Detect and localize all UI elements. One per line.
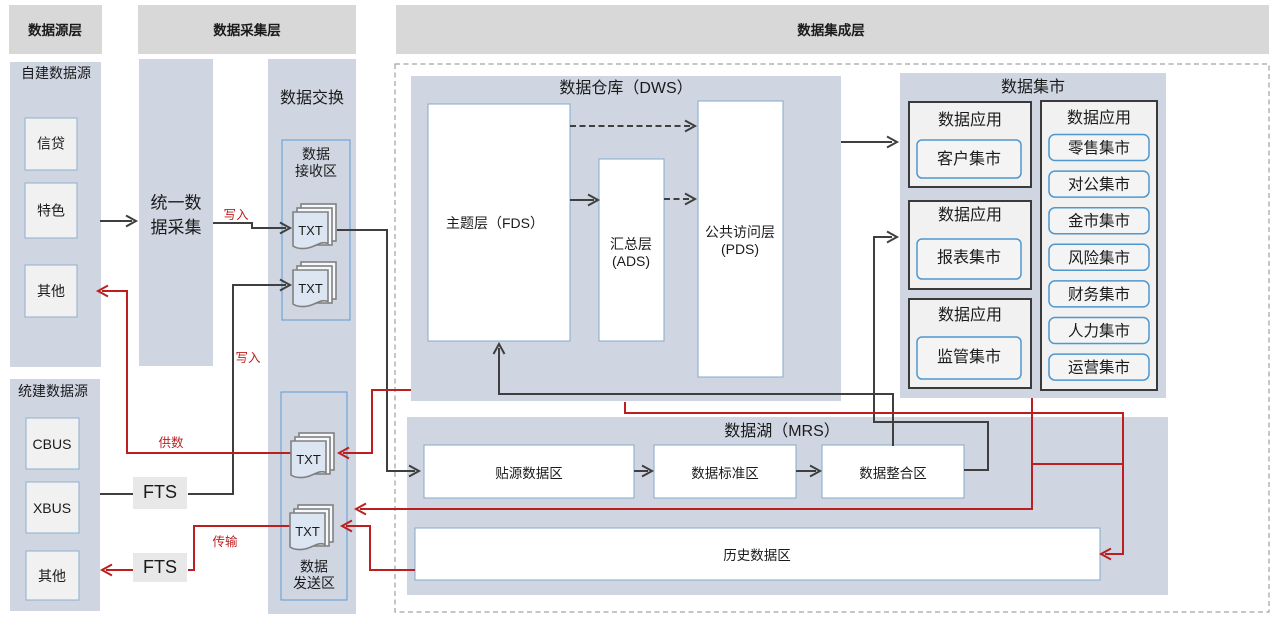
svg-text:数据应用: 数据应用 <box>938 110 1002 129</box>
svg-text:TXT: TXT <box>298 223 323 238</box>
svg-text:据采集: 据采集 <box>151 218 202 237</box>
svg-text:数据应用: 数据应用 <box>1067 108 1131 127</box>
svg-text:统建数据源: 统建数据源 <box>18 383 88 399</box>
svg-text:其他: 其他 <box>38 568 66 584</box>
svg-text:数据采集层: 数据采集层 <box>213 22 281 38</box>
svg-text:数据: 数据 <box>300 559 328 575</box>
svg-text:风险集市: 风险集市 <box>1068 249 1130 267</box>
svg-text:FTS: FTS <box>143 482 177 502</box>
svg-text:贴源数据区: 贴源数据区 <box>495 466 563 481</box>
svg-text:FTS: FTS <box>143 557 177 577</box>
svg-text:数据标准区: 数据标准区 <box>691 466 759 481</box>
svg-text:数据仓库（DWS）: 数据仓库（DWS） <box>559 79 692 97</box>
svg-text:汇总层: 汇总层 <box>610 236 652 252</box>
svg-text:人力集市: 人力集市 <box>1068 322 1130 340</box>
svg-text:金市集市: 金市集市 <box>1068 212 1130 230</box>
svg-text:对公集市: 对公集市 <box>1068 176 1130 194</box>
svg-text:运营集市: 运营集市 <box>1068 359 1130 377</box>
svg-text:数据整合区: 数据整合区 <box>859 466 927 481</box>
svg-text:供数: 供数 <box>158 435 184 450</box>
svg-text:公共访问层: 公共访问层 <box>705 224 775 240</box>
svg-text:自建数据源: 自建数据源 <box>21 65 91 81</box>
svg-text:数据源层: 数据源层 <box>28 22 82 38</box>
svg-text:数据湖（MRS）: 数据湖（MRS） <box>724 422 840 440</box>
svg-text:数据: 数据 <box>302 146 330 162</box>
svg-text:财务集市: 财务集市 <box>1068 285 1130 303</box>
svg-text:写入: 写入 <box>223 208 249 222</box>
svg-text:零售集市: 零售集市 <box>1068 139 1130 157</box>
svg-text:发送区: 发送区 <box>293 575 335 591</box>
svg-text:数据应用: 数据应用 <box>938 205 1002 224</box>
svg-text:数据集市: 数据集市 <box>1001 78 1065 96</box>
svg-text:历史数据区: 历史数据区 <box>723 548 791 563</box>
svg-text:客户集市: 客户集市 <box>937 150 1001 168</box>
svg-text:监管集市: 监管集市 <box>937 348 1001 366</box>
svg-text:CBUS: CBUS <box>33 436 72 452</box>
svg-text:数据应用: 数据应用 <box>938 305 1002 324</box>
svg-text:XBUS: XBUS <box>33 500 71 516</box>
svg-text:报表集市: 报表集市 <box>937 249 1001 267</box>
svg-text:(PDS): (PDS) <box>721 241 759 257</box>
svg-text:主题层（FDS）: 主题层（FDS） <box>446 215 544 231</box>
svg-text:数据交换: 数据交换 <box>280 89 344 107</box>
svg-text:信贷: 信贷 <box>37 136 65 152</box>
svg-text:(ADS): (ADS) <box>612 253 650 269</box>
svg-text:统一数: 统一数 <box>151 194 202 213</box>
svg-text:写入: 写入 <box>235 351 261 365</box>
svg-text:接收区: 接收区 <box>295 163 337 179</box>
svg-text:特色: 特色 <box>37 203 65 219</box>
svg-text:数据集成层: 数据集成层 <box>797 22 865 38</box>
svg-text:传输: 传输 <box>212 534 238 549</box>
svg-text:其他: 其他 <box>37 283 65 299</box>
